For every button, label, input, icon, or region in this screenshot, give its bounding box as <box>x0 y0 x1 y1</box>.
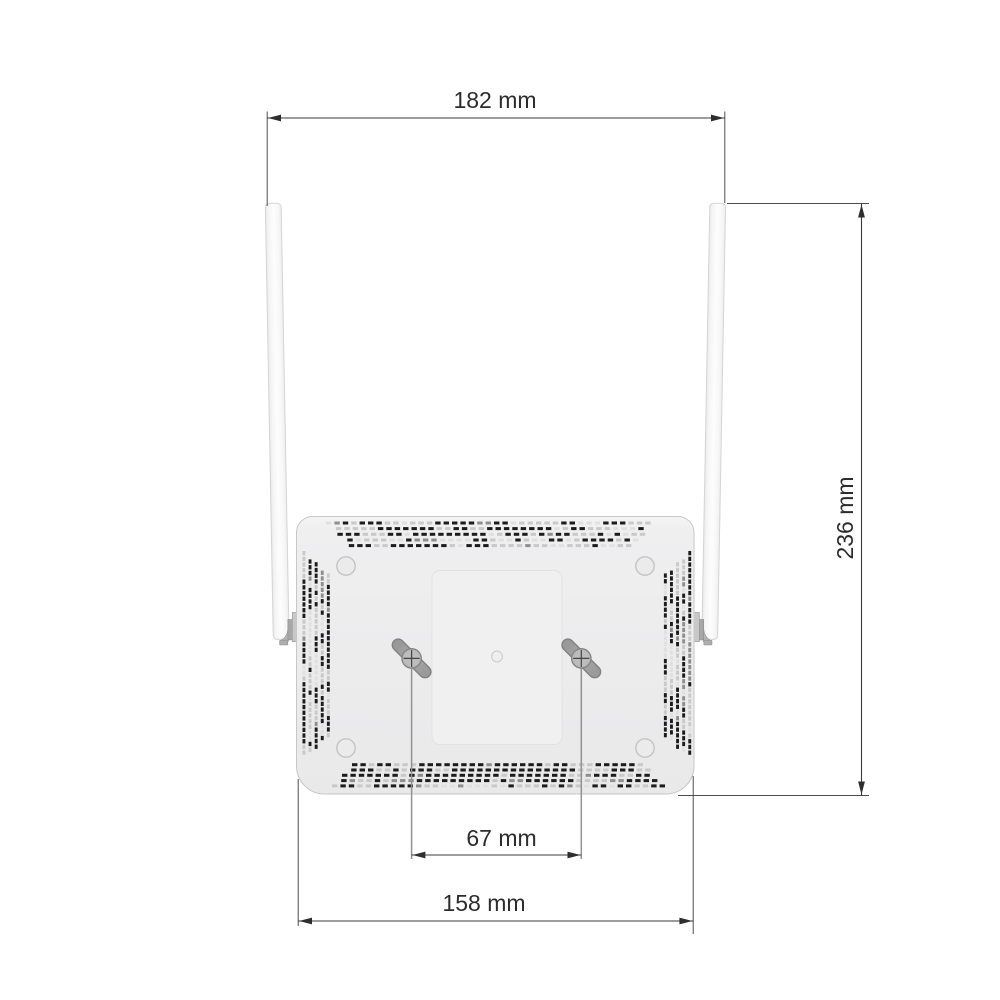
svg-text:236 mm: 236 mm <box>832 476 858 559</box>
svg-text:182 mm: 182 mm <box>453 87 536 113</box>
svg-text:158 mm: 158 mm <box>442 890 525 916</box>
svg-text:67 mm: 67 mm <box>466 825 536 851</box>
